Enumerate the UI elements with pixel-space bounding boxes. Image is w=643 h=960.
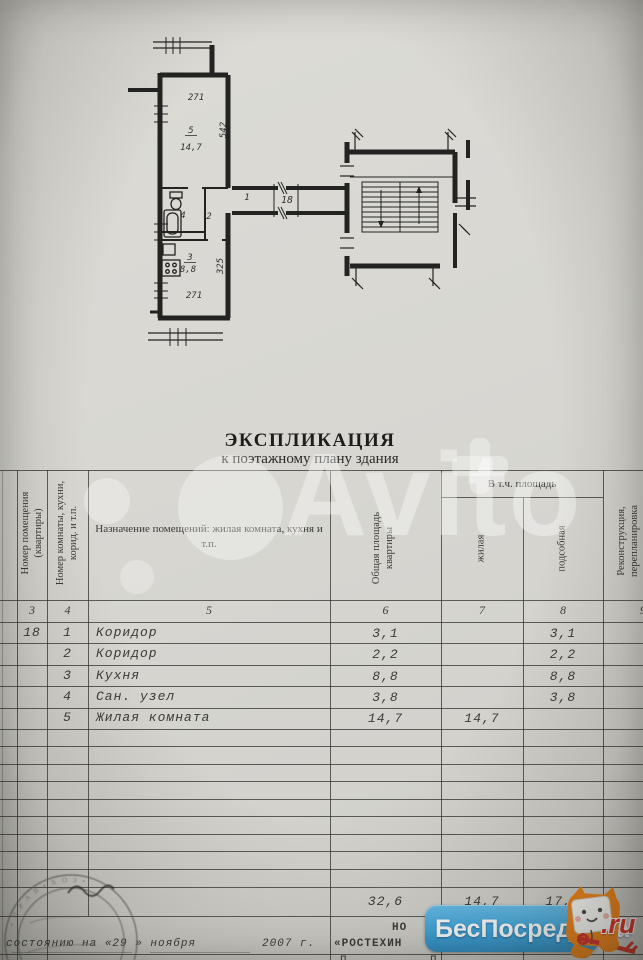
cell-living: 14,7 (441, 711, 523, 726)
plan-dim-bottom: 271 (186, 291, 202, 301)
cell-aux: 3,8 (523, 690, 603, 705)
cell-name: Коридор (96, 646, 158, 661)
column-number-3: 3 (17, 603, 47, 618)
cell-total: 3,8 (330, 690, 441, 705)
plan-bath-number: 4 (180, 211, 185, 221)
cell-total: 14,7 (330, 711, 441, 726)
cell-name: Жилая комната (96, 710, 210, 725)
column-number-6: 6 (330, 603, 441, 618)
floor-plan: 271 5 14,7 542 4 2 3 8,8 325 271 1 18 (128, 28, 478, 353)
column-number-4: 4 (47, 603, 88, 618)
header-flat-number: Номер помещения (квартиры) (19, 475, 45, 591)
avito-watermark-circle (120, 560, 154, 594)
plan-dim-right-bottom: 325 (216, 258, 226, 275)
plan-kitchen-area: 8,8 (180, 265, 196, 275)
table-line (0, 799, 643, 800)
table-line (0, 729, 643, 730)
cell-num: 2 (47, 646, 88, 661)
plan-dim-right-top: 542 (219, 122, 229, 138)
page-title: ЭКСПЛИКАЦИЯ (110, 430, 510, 452)
column-number-8: 8 (523, 603, 603, 618)
cell-num: 5 (47, 710, 88, 725)
header-room-number: Номер комнаты, кухни, корид. и т.п. (54, 475, 80, 591)
table-line (0, 746, 643, 747)
cell-total: 8,8 (330, 669, 441, 684)
column-number-5: 5 (88, 603, 330, 618)
page-subtitle: к поэтажному плану здания (110, 451, 510, 468)
plan-flat-number: 18 (281, 195, 293, 206)
plan-kitchen-number: 3 (186, 253, 192, 263)
header-total-area: Общая площадь квартиры (370, 500, 396, 596)
cell-num: 3 (47, 668, 88, 683)
cell-aux: 8,8 (523, 669, 603, 684)
plan-hall1-number: 1 (244, 193, 249, 203)
table-line (0, 764, 643, 765)
table-line (441, 497, 603, 498)
round-stamp: • П Р А В • Х О З • (0, 845, 340, 960)
header-reconstruction-line2: перепланировка (629, 505, 640, 577)
header-auxiliary-area: подсобная (556, 505, 569, 593)
cell-total: 3,1 (330, 626, 441, 641)
cell-name: Кухня (96, 668, 140, 683)
document-photo: 271 5 14,7 542 4 2 3 8,8 325 271 1 18 ЭК… (0, 0, 643, 960)
illegible-handwriting (68, 885, 114, 896)
cell-total: 2,2 (330, 647, 441, 662)
cell-aux: 3,1 (523, 626, 603, 641)
footer-org-fragment: «РОСТЕХИН (334, 938, 402, 950)
table-line (0, 708, 643, 709)
agency-logo-tld: .ru (601, 909, 636, 940)
agency-logo: БесПосредника .ru (425, 886, 643, 960)
cell-flat: 18 (17, 625, 47, 640)
table-line (0, 643, 643, 644)
header-reconstruction-line1: Реконструкция, (616, 506, 627, 575)
table-line (0, 686, 643, 687)
cell-num: 1 (47, 625, 88, 640)
table-line (0, 470, 643, 471)
cell-name: Коридор (96, 625, 158, 640)
table-line (0, 600, 643, 601)
cell-aux: 2,2 (523, 647, 603, 662)
footer-fragment-no: НО (392, 922, 407, 934)
svg-text:• П Р А В • Х О З •: • П Р А В • Х О З • (8, 876, 88, 927)
cell-name: Сан. узел (96, 689, 175, 704)
avito-watermark-circle (84, 478, 130, 524)
table-line (0, 816, 643, 817)
header-living-area: жилая (475, 505, 488, 593)
table-line (0, 834, 643, 835)
plan-room5-area: 14,7 (180, 143, 202, 153)
header-purpose: Назначение помещений: жилая комната, кух… (92, 522, 326, 552)
header-incl-area-group: В т.ч. площадь (441, 478, 603, 491)
stamp-curved-text: • П Р А В • Х О З • (8, 876, 88, 927)
plan-dim-top: 271 (188, 93, 204, 103)
cell-num: 4 (47, 689, 88, 704)
table-line (0, 781, 643, 782)
column-number-9: 9 (630, 603, 643, 618)
column-number-7: 7 (441, 603, 523, 618)
header-reconstruction: Реконструкция, перепланировка (615, 485, 641, 597)
footer-partial-row-left: П (340, 955, 348, 960)
table-line (0, 622, 643, 623)
table-line (0, 665, 643, 666)
plan-hall2-number: 2 (206, 212, 211, 222)
plan-room5-number: 5 (188, 126, 193, 136)
